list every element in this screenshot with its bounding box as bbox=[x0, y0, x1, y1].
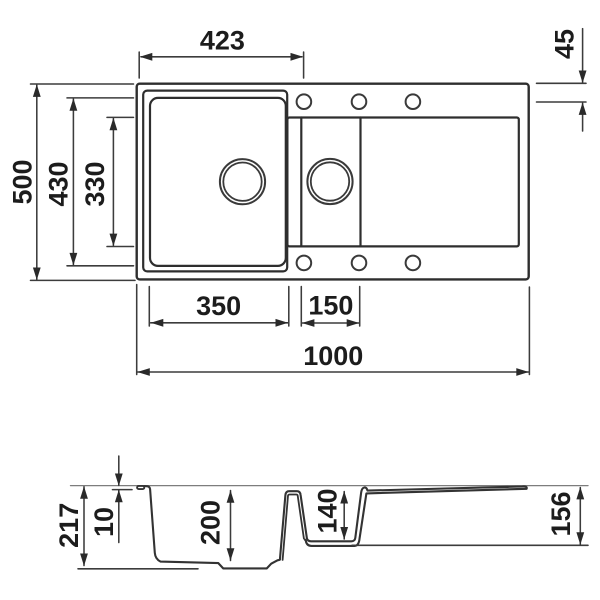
svg-text:45: 45 bbox=[550, 29, 580, 59]
svg-text:430: 430 bbox=[44, 161, 74, 206]
svg-text:200: 200 bbox=[196, 500, 226, 545]
svg-text:10: 10 bbox=[89, 507, 119, 537]
svg-text:423: 423 bbox=[200, 26, 245, 56]
svg-text:330: 330 bbox=[80, 161, 110, 206]
svg-text:350: 350 bbox=[196, 291, 241, 321]
svg-text:156: 156 bbox=[546, 491, 576, 536]
svg-text:217: 217 bbox=[54, 503, 84, 548]
svg-text:1000: 1000 bbox=[303, 341, 363, 371]
svg-text:500: 500 bbox=[8, 159, 38, 204]
svg-text:140: 140 bbox=[312, 488, 342, 533]
svg-text:150: 150 bbox=[308, 291, 353, 321]
